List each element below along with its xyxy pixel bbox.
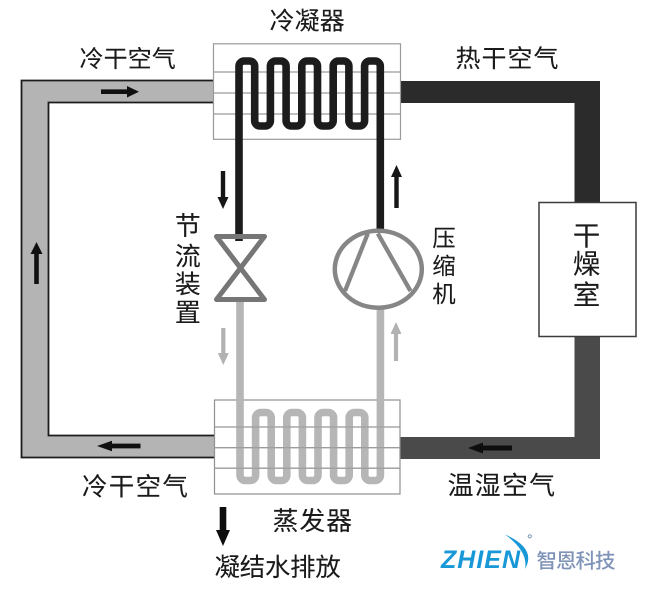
svg-text:ZHIEN: ZHIEN [440,546,521,574]
